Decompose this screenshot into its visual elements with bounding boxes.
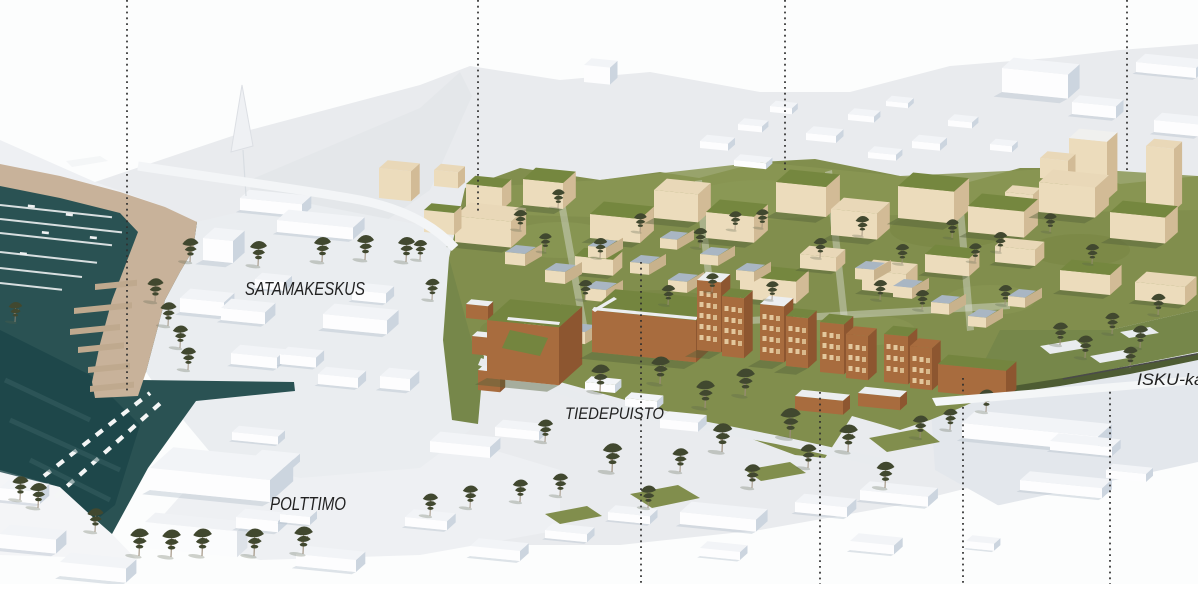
svg-text:SATAMAKESKUS: SATAMAKESKUS	[245, 278, 366, 299]
svg-text:TIEDEPUISTO: TIEDEPUISTO	[565, 404, 664, 423]
svg-text:POLTTIMO: POLTTIMO	[270, 493, 346, 514]
svg-text:ISKU-kart: ISKU-kart	[1137, 370, 1198, 389]
